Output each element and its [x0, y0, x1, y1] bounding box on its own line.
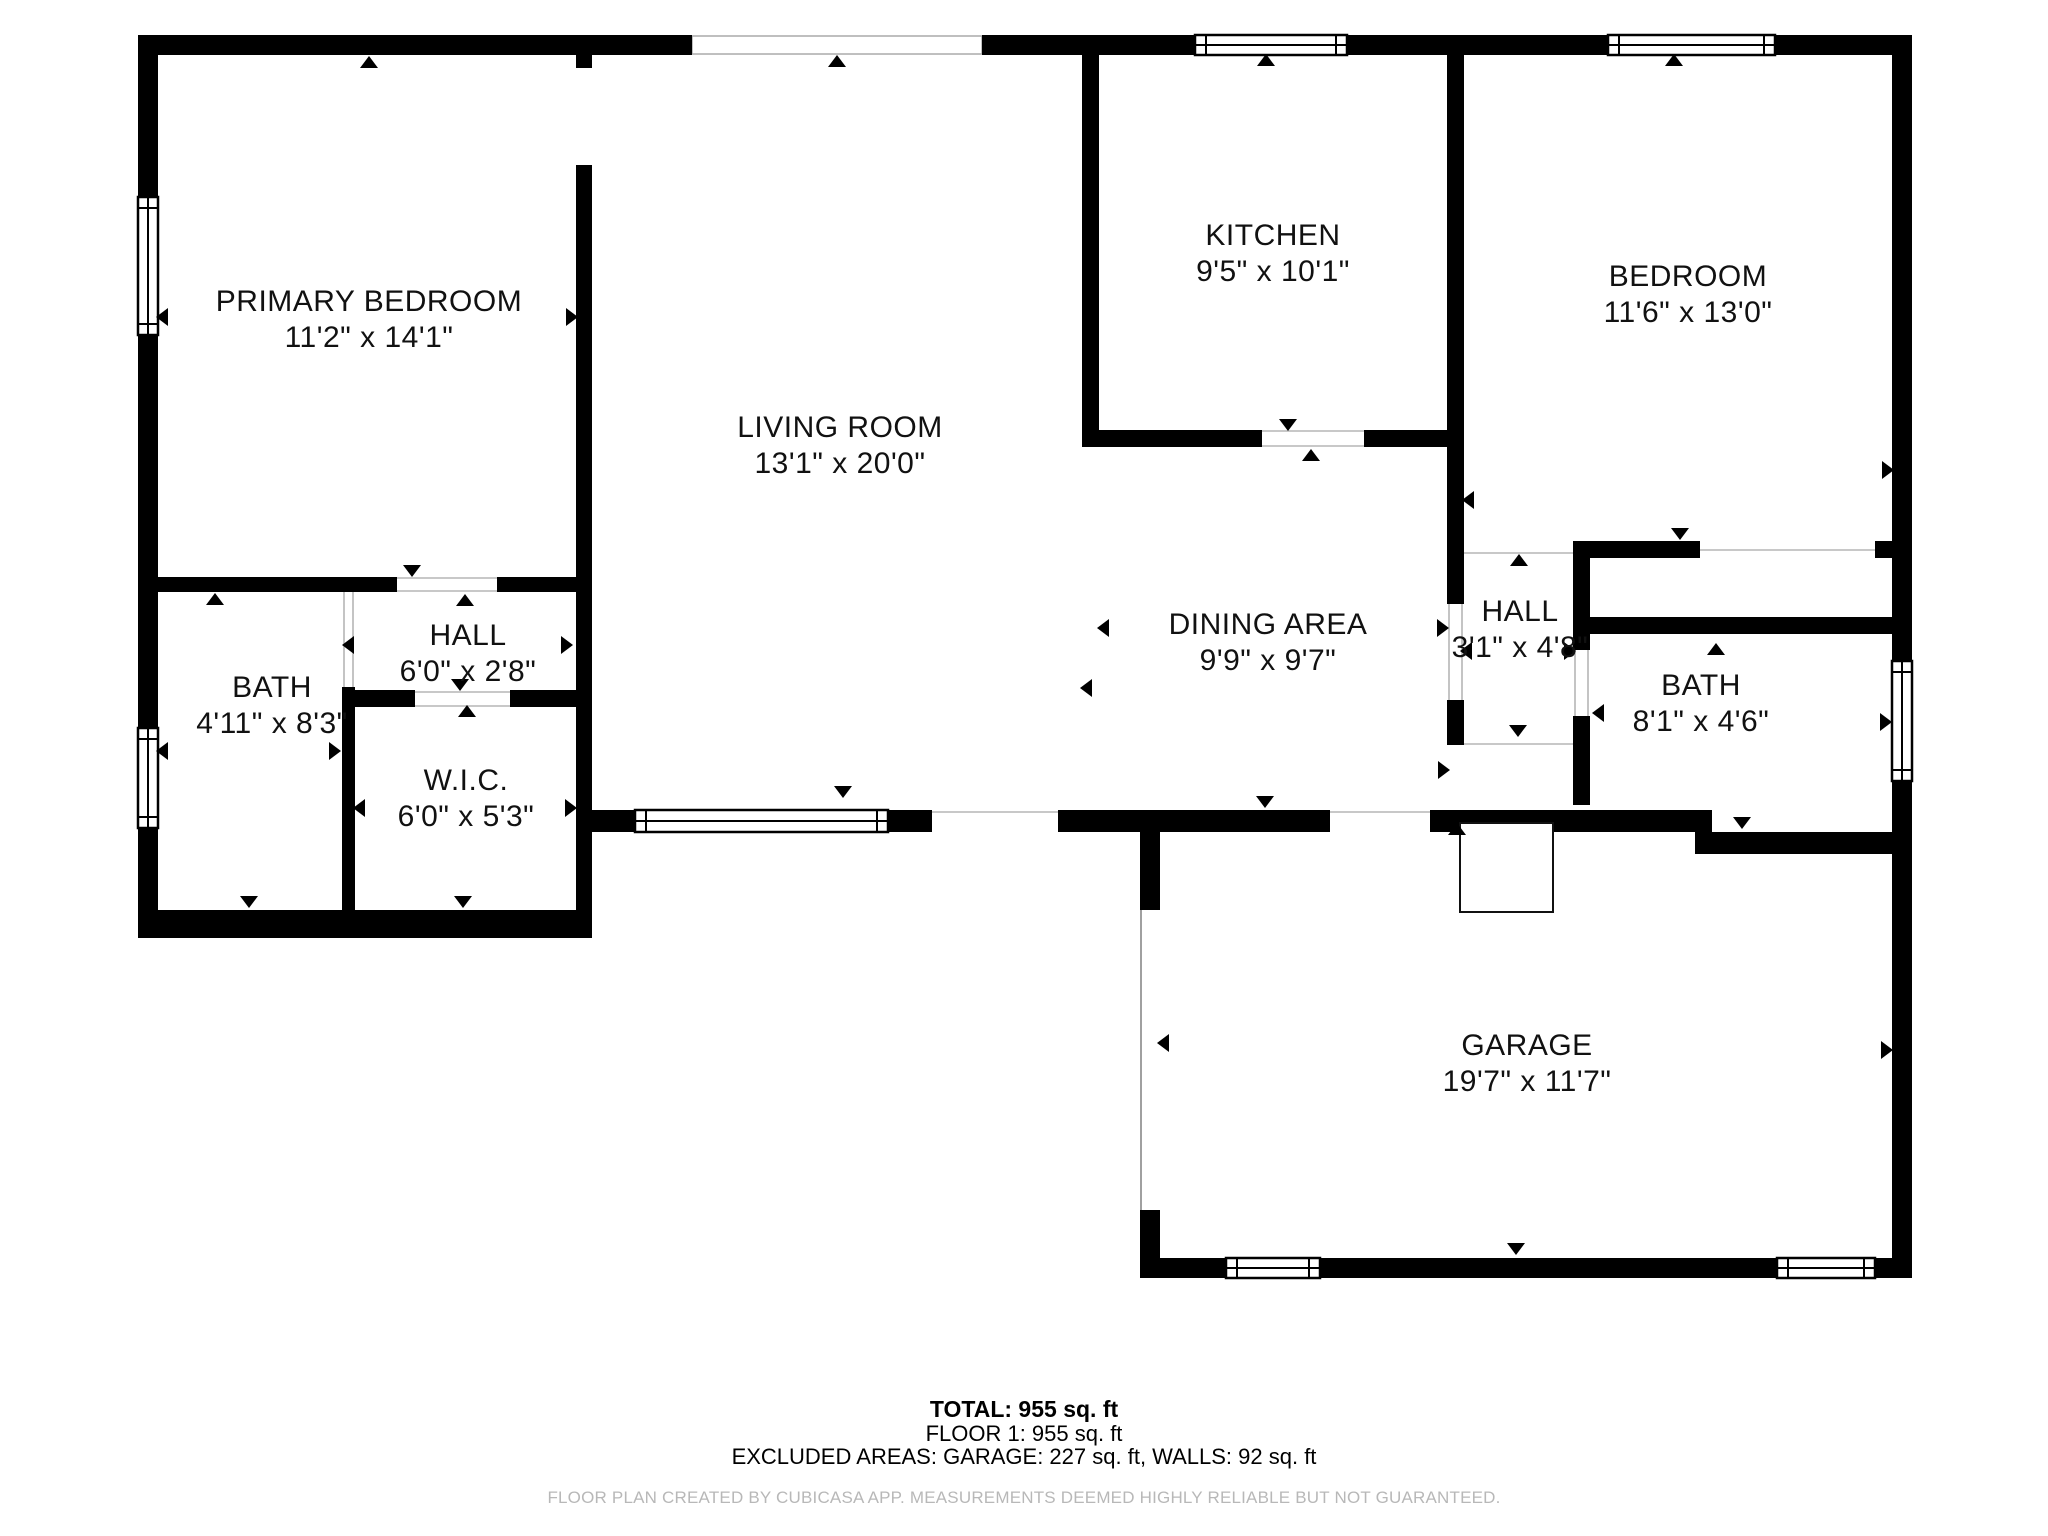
room-name-wic: W.I.C. [424, 764, 509, 797]
room-dimensions-living-room: 13'1" x 20'0" [754, 447, 925, 480]
excluded-areas-text: EXCLUDED AREAS: GARAGE: 227 sq. ft, WALL… [0, 1444, 2048, 1470]
floor-plan-drawing: PRIMARY BEDROOM11'2" x 14'1"LIVING ROOM1… [0, 0, 2048, 1536]
room-name-bedroom: BEDROOM [1609, 260, 1768, 293]
room-dimensions-wic: 6'0" x 5'3" [398, 800, 535, 833]
room-name-bath-1: BATH [232, 671, 312, 704]
room-labels: PRIMARY BEDROOM11'2" x 14'1"LIVING ROOM1… [196, 219, 1772, 1098]
room-dimensions-dining-area: 9'9" x 9'7" [1200, 644, 1337, 677]
room-name-dining-area: DINING AREA [1169, 608, 1368, 641]
room-name-hall-2: HALL [1481, 595, 1558, 628]
total-area-text: TOTAL: 955 sq. ft [0, 1396, 2048, 1423]
room-dimensions-garage: 19'7" x 11'7" [1443, 1065, 1612, 1098]
room-name-living-room: LIVING ROOM [737, 411, 943, 444]
room-name-bath-2: BATH [1661, 669, 1741, 702]
room-dimensions-hall-1: 6'0" x 2'8" [400, 655, 537, 688]
room-dimensions-kitchen: 9'5" x 10'1" [1196, 255, 1350, 288]
room-dimensions-bedroom: 11'6" x 13'0" [1604, 296, 1773, 329]
room-name-primary-bedroom: PRIMARY BEDROOM [216, 285, 522, 318]
room-dimensions-primary-bedroom: 11'2" x 14'1" [285, 321, 454, 354]
room-name-garage: GARAGE [1461, 1029, 1592, 1062]
floor-plan-page: PRIMARY BEDROOM11'2" x 14'1"LIVING ROOM1… [0, 0, 2048, 1536]
room-name-kitchen: KITCHEN [1205, 219, 1340, 252]
room-dimensions-hall-2: 3'1" x 4'8" [1452, 631, 1589, 664]
room-dimensions-bath-2: 8'1" x 4'6" [1633, 705, 1770, 738]
room-name-hall-1: HALL [429, 619, 506, 652]
disclaimer-text: FLOOR PLAN CREATED BY CUBICASA APP. MEAS… [0, 1488, 2048, 1508]
wall-openings [692, 36, 982, 54]
room-dimensions-bath-1: 4'11" x 8'3" [196, 707, 348, 740]
